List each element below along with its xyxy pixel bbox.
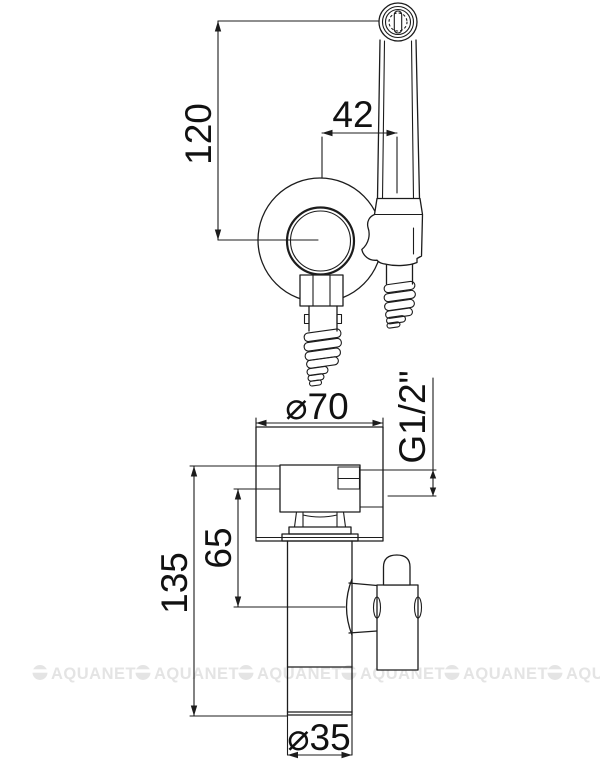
dim-label-35: ⌀35	[287, 717, 350, 758]
dim-label-g12: G1/2"	[392, 370, 433, 463]
watermark-text: AQUANET	[257, 665, 342, 683]
hose-spring-coil	[384, 281, 416, 328]
watermark-text: AQUANET	[566, 665, 600, 683]
side-outlet	[347, 555, 422, 670]
watermark-text: AQUANET	[154, 665, 239, 683]
dim-label-120: 120	[178, 103, 219, 165]
watermark-text: AQUANET	[463, 665, 548, 683]
upper-view	[258, 3, 423, 386]
shower-holder	[362, 199, 423, 266]
watermark-item: AQUANET	[32, 665, 136, 683]
holder-hose	[384, 265, 416, 329]
watermark-item: AQUANET	[135, 665, 239, 683]
hose-spring-coil	[304, 328, 342, 386]
watermark-text: AQUANET	[51, 665, 136, 683]
watermark-item: AQUANET	[238, 665, 342, 683]
lower-hose-connection	[300, 275, 343, 386]
watermark-item: AQUANET	[444, 665, 548, 683]
dim-35: ⌀35	[287, 716, 352, 758]
dim-42: 42	[322, 94, 397, 193]
dim-label-65: 65	[198, 527, 239, 568]
technical-drawing: AQUANET AQUANET AQUANET AQUANET AQUANET …	[0, 0, 600, 760]
watermark-item: AQUANET	[547, 665, 600, 683]
drawing-svg: AQUANET AQUANET AQUANET AQUANET AQUANET …	[0, 0, 600, 760]
dim-label-42: 42	[332, 94, 373, 135]
dim-70: ⌀70	[256, 386, 383, 428]
watermark-row: AQUANET AQUANET AQUANET AQUANET AQUANET …	[32, 665, 600, 683]
shower-handle	[378, 40, 420, 199]
shower-head-top	[379, 3, 417, 41]
dim-label-135: 135	[154, 552, 195, 614]
valve-body-cylinder	[288, 541, 353, 715]
dim-label-70: ⌀70	[285, 386, 348, 427]
